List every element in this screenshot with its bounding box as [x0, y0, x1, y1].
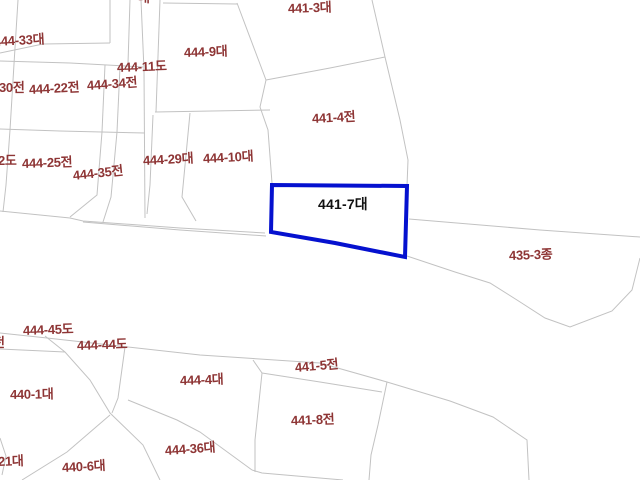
- parcel-label-top-fragment: 대: [138, 0, 150, 5]
- parcel-label-30: 30전: [0, 81, 25, 95]
- parcel-label-jeon-fragment: 전: [0, 336, 5, 350]
- map-canvas[interactable]: 444-33대 444-9대 441-3대 444-11도 30전 444-22…: [0, 0, 640, 480]
- parcel-label-444-11: 444-11도: [117, 59, 167, 75]
- parcel-label-444-9: 444-9대: [184, 44, 228, 60]
- parcel-label-444-29: 444-29대: [143, 151, 194, 168]
- parcel-label-435-3: 435-3종: [509, 247, 553, 263]
- parcel-label-441-3: 441-3대: [288, 0, 332, 16]
- parcel-label-444-45: 444-45도: [23, 322, 74, 338]
- parcel-label-21: 21대: [0, 454, 24, 469]
- parcel-boundary-lines: [0, 0, 640, 480]
- parcel-label-441-4: 441-4전: [312, 110, 356, 126]
- parcel-label-444-22: 444-22전: [29, 80, 80, 97]
- parcel-label-440-1: 440-1대: [10, 387, 54, 402]
- parcel-label-441-8: 441-8전: [291, 412, 335, 428]
- parcel-label-444-33: 444-33대: [0, 32, 45, 49]
- parcel-label-440-6: 440-6대: [62, 459, 106, 475]
- parcel-label-444-25: 444-25전: [22, 155, 73, 171]
- parcel-label-444-44: 444-44도: [77, 337, 128, 353]
- selected-parcel-label: 441-7대: [318, 197, 368, 211]
- parcel-label-2do: 2도: [0, 154, 17, 168]
- parcel-label-444-4: 444-4대: [180, 372, 224, 388]
- parcel-label-444-10: 444-10대: [203, 149, 254, 166]
